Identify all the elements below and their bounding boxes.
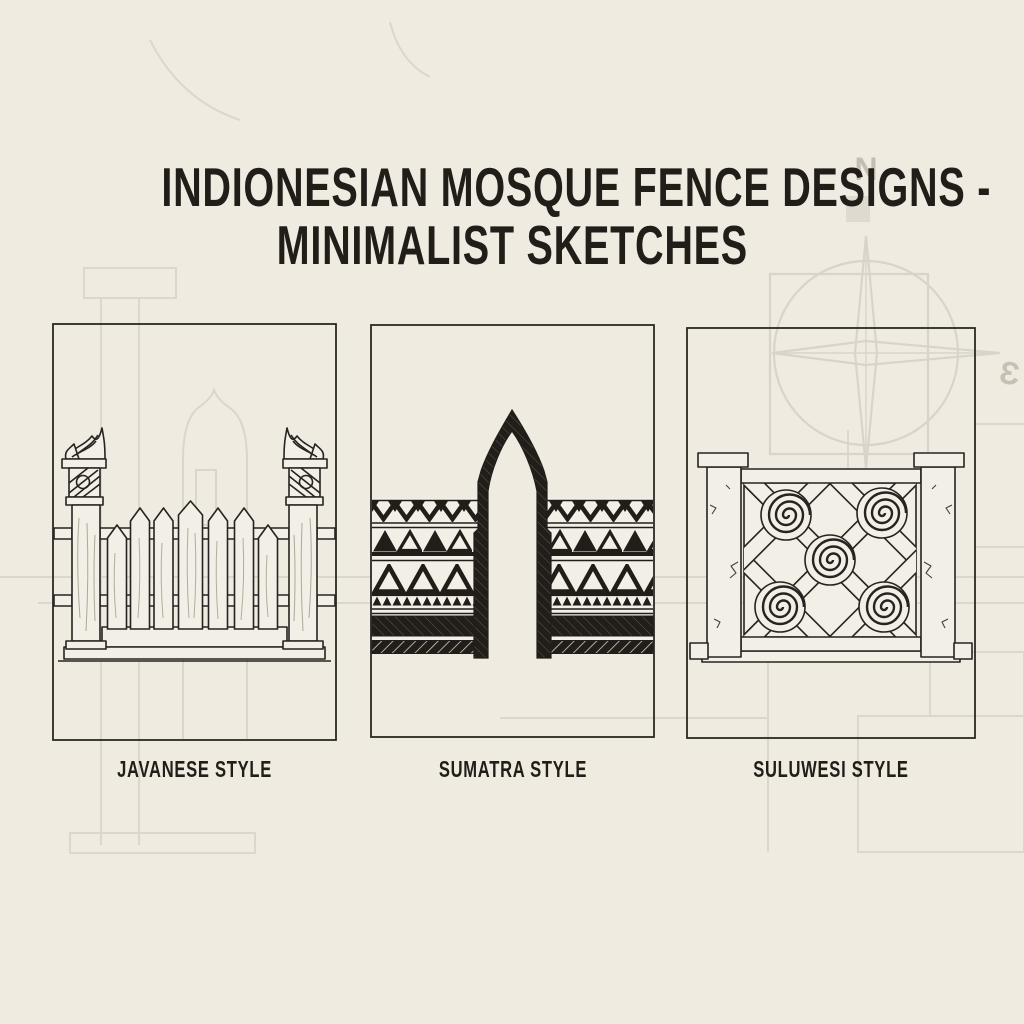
poster-canvas: N Ɛ INDIONESIAN MOSQUE FENCE DESIGNS - M… [0,0,1024,1024]
sulawesi-fence-illustration [686,327,976,739]
title-line-2: MINIMALIST SKETCHES [0,216,1024,274]
caption-javanese: JAVANESE STYLE [52,756,337,783]
caption-sumatra: SUMATRA STYLE [370,756,655,783]
panel-sumatra [370,324,655,738]
right-fence-post [914,453,972,659]
caption-sulawesi: SULUWESI STYLE [686,756,976,783]
javanese-fence-illustration [52,323,337,741]
title-line-1: INDIONESIAN MOSQUE FENCE DESIGNS - [0,158,1024,216]
picket-fence [108,501,278,629]
left-fence-post [690,453,748,659]
ogee-arch-gateway [474,410,551,658]
poster-title: INDIONESIAN MOSQUE FENCE DESIGNS - MINIM… [0,158,1024,274]
panel-sulawesi [686,327,976,739]
top-rail [741,469,921,483]
panel-javanese [52,323,337,741]
fence-base-board [102,627,287,647]
compass-east-label: Ɛ [997,354,1022,392]
bottom-rail [741,637,921,651]
sumatra-fence-illustration [370,324,655,738]
